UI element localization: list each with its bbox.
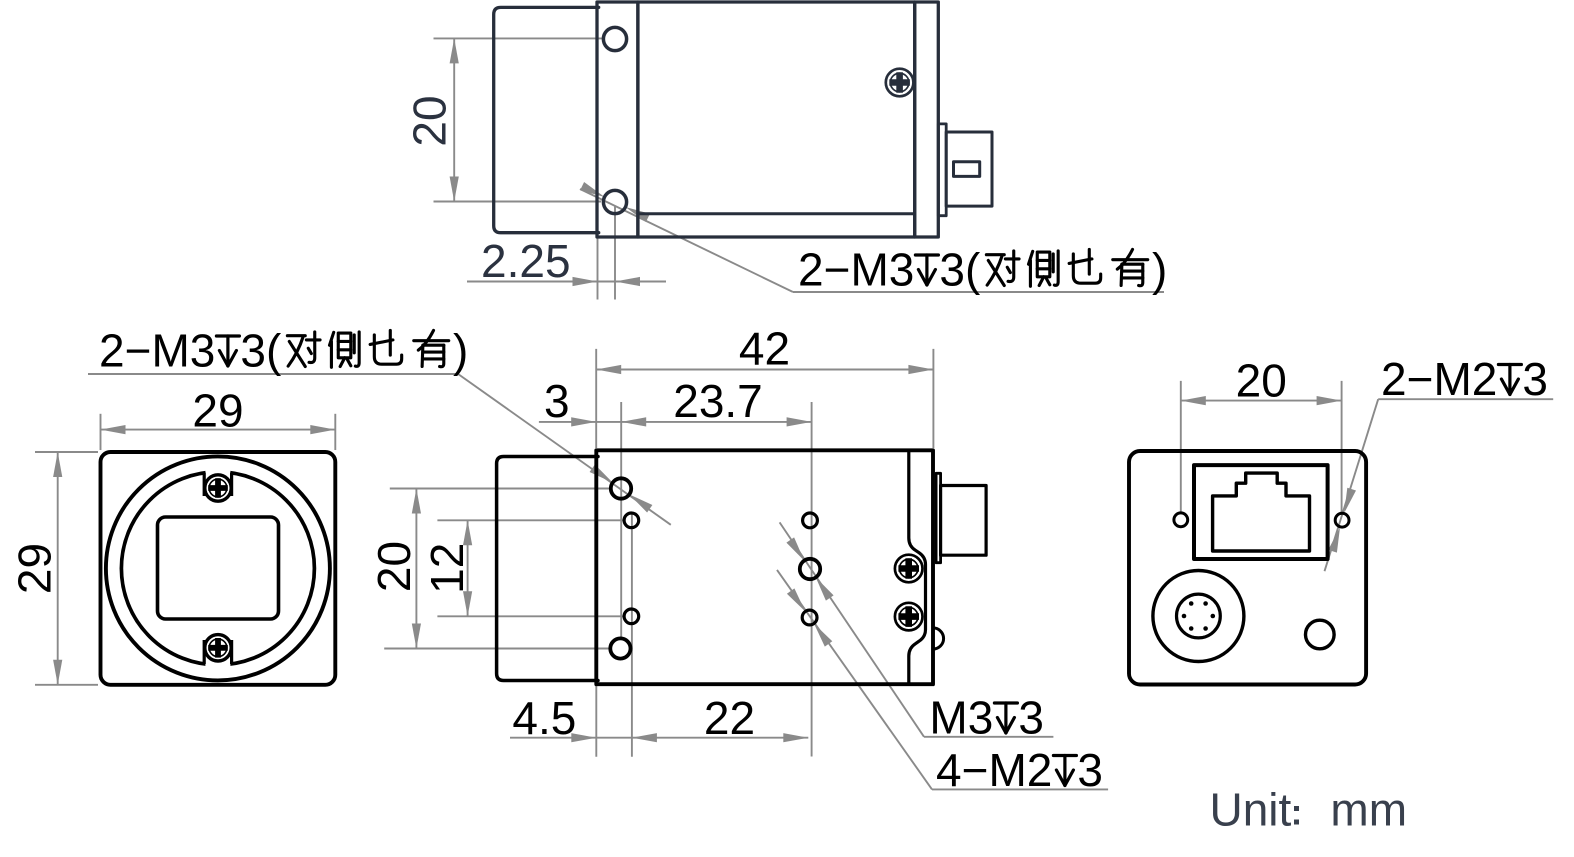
svg-text:20: 20 xyxy=(1236,354,1287,406)
svg-text:12: 12 xyxy=(421,543,473,594)
svg-text:2−M2: 2−M2 xyxy=(1381,353,1497,405)
svg-text:2.25: 2.25 xyxy=(481,235,571,287)
svg-text:Unit: Unit xyxy=(1210,783,1292,835)
svg-text:3: 3 xyxy=(1018,692,1044,744)
svg-text:3: 3 xyxy=(1522,353,1548,405)
svg-text:4.5: 4.5 xyxy=(512,692,576,744)
svg-text:2−M3: 2−M3 xyxy=(798,244,914,296)
svg-text:): ) xyxy=(1152,244,1167,296)
svg-text:2−M3: 2−M3 xyxy=(99,325,215,377)
svg-text:29: 29 xyxy=(9,543,61,594)
svg-text:M3: M3 xyxy=(929,692,993,744)
svg-text:23.7: 23.7 xyxy=(673,375,763,427)
svg-text:20: 20 xyxy=(404,95,456,146)
svg-text:20: 20 xyxy=(368,541,420,592)
svg-text:22: 22 xyxy=(704,692,755,744)
svg-text:): ) xyxy=(453,325,468,377)
svg-text:29: 29 xyxy=(192,385,243,437)
svg-text:3: 3 xyxy=(1077,744,1103,796)
svg-text:3(: 3( xyxy=(939,244,981,296)
svg-text:mm: mm xyxy=(1330,783,1407,835)
svg-text:3: 3 xyxy=(544,375,570,427)
svg-text:3(: 3( xyxy=(240,325,282,377)
svg-text:4−M2: 4−M2 xyxy=(936,744,1052,796)
svg-text:42: 42 xyxy=(739,322,790,374)
